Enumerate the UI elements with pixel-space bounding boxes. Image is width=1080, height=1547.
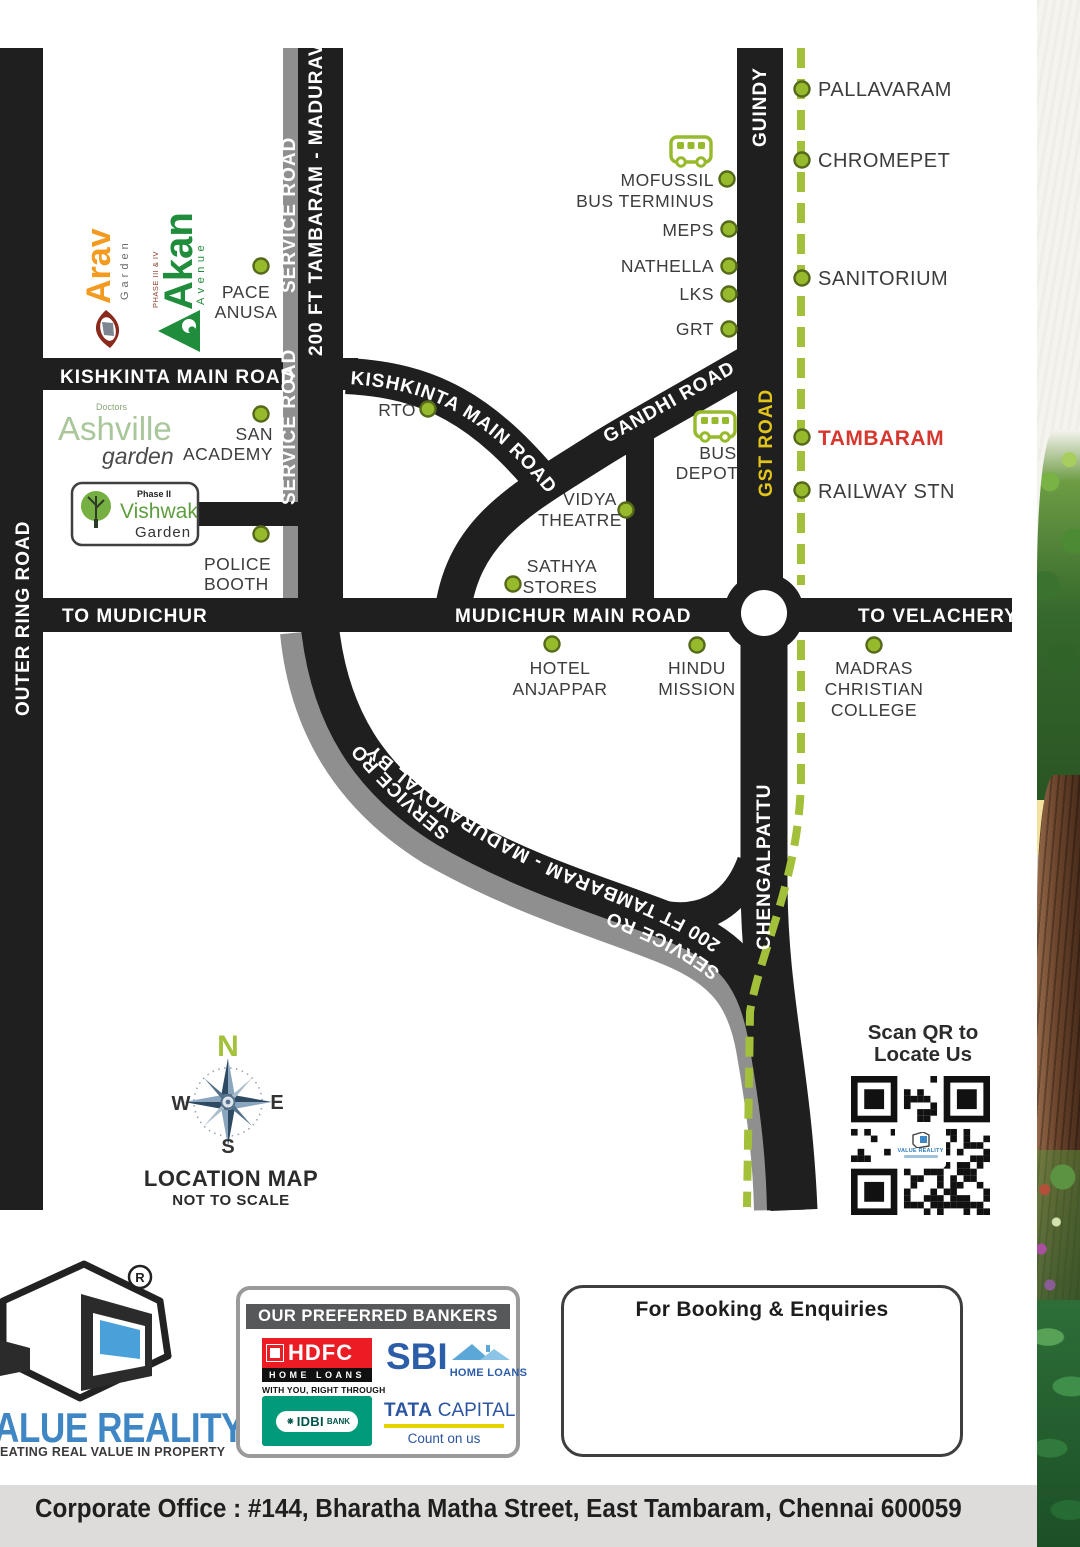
mofussil-bus-icon — [671, 137, 711, 166]
booking-title: For Booking & Enquiries — [564, 1298, 960, 1322]
bankers-header: OUR PREFERRED BANKERS — [246, 1304, 510, 1329]
map-title: LOCATION MAP — [144, 1166, 318, 1191]
station-chromepet: CHROMEPET — [818, 150, 950, 172]
svg-text:Arav: Arav — [80, 228, 118, 304]
road-label-outer-ring: OUTER RING ROAD — [13, 521, 34, 717]
station-sanitorium: SANITORIUM — [818, 268, 948, 290]
sbi-name: SBI — [386, 1340, 448, 1373]
hdfc-tagline: WITH YOU, RIGHT THROUGH — [262, 1385, 372, 1395]
svg-text:STORES: STORES — [523, 577, 598, 597]
tata-capital-logo: TATA CAPITAL Count on us — [384, 1400, 504, 1446]
map-subtitle: NOT TO SCALE — [172, 1192, 289, 1209]
brand-tagline: EATING REAL VALUE IN PROPERTY — [0, 1445, 225, 1459]
booking-enquiries-box: For Booking & Enquiries — [561, 1285, 963, 1457]
hdfc-name: HDFC — [288, 1340, 353, 1366]
svg-text:ANJAPPAR: ANJAPPAR — [512, 679, 607, 699]
bottom-band: Corporate Office : #144, Bharatha Matha … — [0, 1485, 1080, 1547]
idbi-bank: BANK — [327, 1417, 350, 1426]
roundabout — [724, 573, 804, 653]
svg-text:Phase II: Phase II — [137, 489, 171, 499]
qr-code: VALUE REALITY — [851, 1076, 990, 1215]
arav-leaf-icon — [96, 310, 119, 348]
hdfc-mark-icon — [266, 1344, 284, 1362]
landmark-san-academy: SAN — [236, 424, 273, 444]
landmark-madras-christian-college: MADRAS — [835, 658, 913, 678]
station-pallavaram: PALLAVARAM — [818, 79, 952, 101]
landmark-hotel-anjappar: HOTEL — [530, 658, 591, 678]
landmark-nathella: NATHELLA — [621, 256, 714, 276]
qr-center-logo: VALUE REALITY — [895, 1122, 946, 1168]
landmark-police-booth: POLICE — [204, 554, 271, 574]
compass-star — [184, 1058, 272, 1146]
photo-ground-leaves — [1037, 1300, 1080, 1547]
svg-text:BUS TERMINUS: BUS TERMINUS — [576, 191, 714, 211]
road-label-chengalpattu: CHENGALPATTU — [754, 784, 775, 950]
qr-logo-brand: VALUE REALITY — [898, 1148, 944, 1154]
akan-triangle-icon — [158, 310, 200, 352]
tata-tagline: Count on us — [384, 1431, 504, 1446]
landmark-lks: LKS — [679, 284, 714, 304]
qr-logo-house-icon — [911, 1132, 931, 1148]
svg-text:Garden: Garden — [135, 524, 191, 541]
road-label-to-mudichur: TO MUDICHUR — [62, 606, 208, 627]
sbi-roof-icon — [450, 1340, 514, 1362]
landmark-grt: GRT — [676, 319, 714, 339]
hdfc-home-loans: HOME LOANS — [262, 1368, 372, 1382]
photo-paper-texture — [1037, 0, 1080, 460]
landmark-sathya-stores: SATHYA — [527, 556, 597, 576]
hdfc-logo: HDFC HOME LOANS WITH YOU, RIGHT THROUGH — [262, 1338, 372, 1395]
svg-text:BOOTH: BOOTH — [204, 574, 269, 594]
sbi-logo: SBI HOME LOANS — [386, 1340, 506, 1379]
station-tambaram: TAMBARAM — [818, 427, 944, 450]
tata-yellow-line — [384, 1424, 504, 1428]
road-label-service-top1: SERVICE ROAD — [279, 137, 300, 293]
landmark-pace-anusa: PACE — [222, 282, 270, 302]
photo-strip — [1037, 0, 1080, 1547]
compass-s: S — [221, 1136, 234, 1158]
road-label-gst: GST ROAD — [756, 389, 777, 497]
depot-bus-icon — [695, 412, 735, 441]
arav-garden-logo: Arav Garden — [80, 228, 131, 348]
idbi-name: IDBI — [297, 1414, 324, 1429]
idbi-flower-icon: ❋ — [287, 1417, 294, 1426]
compass-rose: N W E S LOCATION MAP NOT TO SCALE — [144, 1030, 318, 1209]
svg-text:ACADEMY: ACADEMY — [183, 444, 273, 464]
landmark-vidya-theatre: VIDYA — [563, 489, 617, 509]
idbi-logo: ❋ IDBI BANK — [262, 1396, 372, 1446]
road-label-gandhi: GANDHI ROAD — [600, 358, 739, 448]
svg-text:COLLEGE: COLLEGE — [831, 700, 917, 720]
sbi-home-loans: HOME LOANS — [450, 1367, 528, 1379]
svg-text:Ashville: Ashville — [58, 410, 172, 447]
landmark-rto: RTO — [378, 400, 416, 420]
svg-text:THEATRE: THEATRE — [538, 510, 622, 530]
compass-n: N — [217, 1030, 239, 1063]
station-railway: RAILWAY STN — [818, 481, 955, 503]
svg-text:Vishwak: Vishwak — [120, 500, 198, 523]
tata-name: TATA — [384, 1400, 432, 1421]
akan-avenue-logo: PHASE III & IV Akan Avenue — [151, 212, 207, 352]
compass-w: W — [172, 1093, 191, 1115]
svg-text:CHRISTIAN: CHRISTIAN — [825, 679, 924, 699]
vishwak-garden-logo: Phase II Vishwak Garden — [72, 483, 198, 545]
road-label-to-velachery: TO VELACHERY — [858, 606, 1012, 627]
value-reality-logo: R — [0, 1258, 185, 1410]
preferred-bankers-card: OUR PREFERRED BANKERS HDFC HOME LOANS WI… — [236, 1286, 520, 1458]
landmark-bus-depot: BUS — [699, 443, 736, 463]
landmark-meps: MEPS — [662, 220, 714, 240]
qr-caption-line1: Scan QR to — [845, 1022, 1001, 1044]
qr-logo-tagline-line — [904, 1155, 938, 1158]
landmark-hindu-mission: HINDU — [668, 658, 726, 678]
registered-mark: R — [135, 1270, 145, 1285]
tata-capital: CAPITAL — [438, 1400, 516, 1421]
qr-caption-line2: Locate Us — [845, 1044, 1001, 1066]
road-label-service-top2: SERVICE ROAD — [279, 349, 300, 505]
photo-tree-foliage — [1037, 430, 1080, 800]
qr-caption: Scan QR to Locate Us — [845, 1022, 1001, 1066]
location-map-flyer: OUTER RING ROAD KISHKINTA MAIN ROAD 200 … — [0, 0, 1080, 1547]
corporate-address: Corporate Office : #144, Bharatha Matha … — [35, 1494, 962, 1524]
svg-text:Garden: Garden — [119, 239, 131, 300]
road-label-guindy: GUINDY — [750, 67, 771, 147]
compass-e: E — [270, 1092, 283, 1114]
svg-text:DEPOT: DEPOT — [676, 463, 739, 483]
svg-text:Avenue: Avenue — [195, 241, 207, 305]
svg-text:MISSION: MISSION — [658, 679, 735, 699]
ashville-garden-logo: Doctors Ashville garden — [58, 402, 174, 469]
svg-text:ANUSA: ANUSA — [215, 302, 278, 322]
road-label-bypass-vertical: 200 FT TAMBARAM - MADURAVOYAL BYPASS — [306, 0, 327, 356]
landmark-mofussil: MOFUSSIL — [621, 170, 714, 190]
road-label-kishkinta: KISHKINTA MAIN ROAD — [60, 367, 295, 388]
svg-text:garden: garden — [102, 443, 174, 469]
road-label-mudichur-main: MUDICHUR MAIN ROAD — [455, 606, 691, 627]
